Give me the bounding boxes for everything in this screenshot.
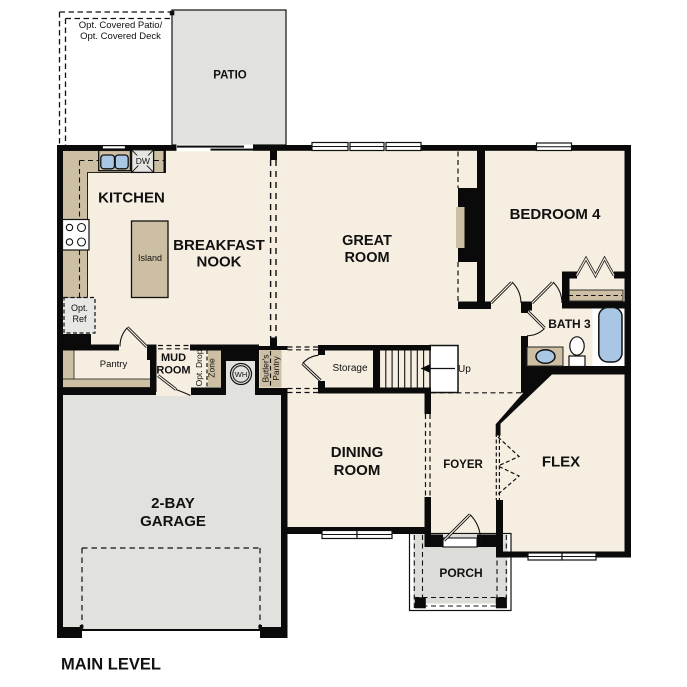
svg-text:Ref: Ref (72, 314, 87, 324)
svg-text:Opt. Covered Deck: Opt. Covered Deck (80, 31, 161, 42)
svg-text:Pantry: Pantry (271, 355, 281, 380)
svg-text:Opt. Drop: Opt. Drop (194, 349, 204, 386)
svg-text:KITCHEN: KITCHEN (98, 190, 165, 207)
svg-text:GARAGE: GARAGE (140, 513, 206, 530)
svg-text:NOOK: NOOK (197, 254, 242, 271)
svg-text:Opt. Covered Patio/: Opt. Covered Patio/ (79, 20, 163, 31)
svg-text:DINING: DINING (331, 444, 384, 461)
svg-text:Opt.: Opt. (71, 303, 88, 313)
svg-text:ROOM: ROOM (344, 250, 389, 266)
svg-text:PATIO: PATIO (213, 70, 246, 82)
svg-text:Butler's: Butler's (261, 354, 271, 382)
svg-text:MAIN LEVEL: MAIN LEVEL (61, 656, 161, 674)
svg-text:BEDROOM 4: BEDROOM 4 (510, 206, 602, 223)
svg-text:FOYER: FOYER (443, 459, 483, 471)
svg-text:BREAKFAST: BREAKFAST (173, 237, 265, 254)
svg-text:Up: Up (458, 364, 471, 375)
svg-text:Island: Island (138, 253, 162, 263)
svg-text:MUD: MUD (161, 352, 186, 364)
svg-text:GREAT: GREAT (342, 233, 392, 249)
svg-text:WH: WH (235, 370, 248, 379)
svg-text:ROOM: ROOM (156, 365, 190, 377)
svg-text:Storage: Storage (332, 363, 367, 374)
svg-text:ROOM: ROOM (334, 462, 381, 479)
svg-text:BATH 3: BATH 3 (548, 317, 591, 331)
svg-text:2-BAY: 2-BAY (151, 495, 195, 512)
svg-text:Pantry: Pantry (100, 359, 128, 370)
svg-text:FLEX: FLEX (542, 454, 580, 471)
svg-text:Zone: Zone (207, 358, 217, 378)
svg-text:DW: DW (136, 156, 150, 166)
svg-text:PORCH: PORCH (439, 566, 482, 580)
